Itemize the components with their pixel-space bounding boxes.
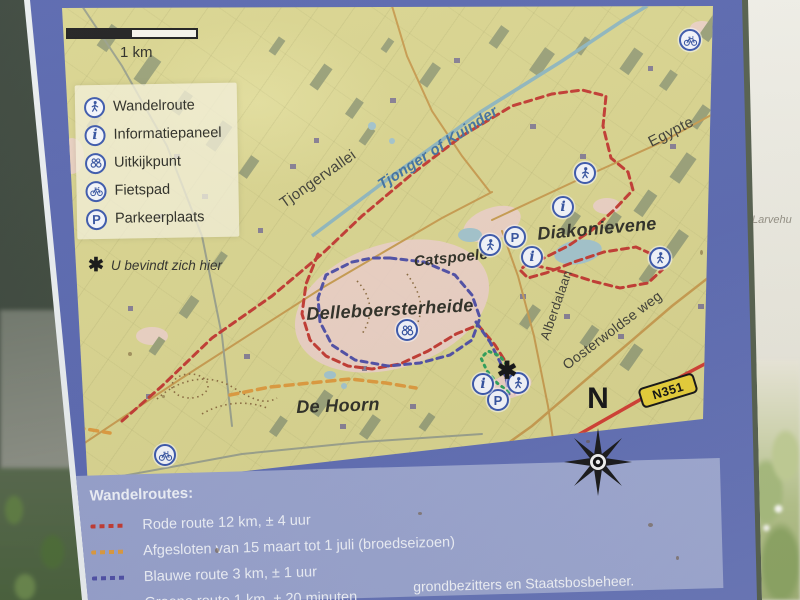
dirt-speck <box>215 548 219 553</box>
compass-star <box>560 414 636 510</box>
photo-of-information-sign: TjongervalleiTjonger of KuinderEgypteDia… <box>0 0 800 600</box>
legend-row-parkeerplaats: P Parkeerplaats <box>86 203 233 234</box>
marker-informatiepaneel: i <box>521 246 543 268</box>
legend-row-fietspad: Fietspad <box>85 175 232 206</box>
legend-label: Parkeerplaats <box>115 209 205 227</box>
marker-wandelroute <box>574 162 596 184</box>
dirt-speck <box>586 440 590 443</box>
route-label: Rode route 12 km, ± 4 uur <box>142 512 311 533</box>
legend-label: Fietspad <box>114 182 170 199</box>
dirt-speck <box>418 512 422 515</box>
route-label: Blauwe route 3 km, ± 1 uur <box>144 564 318 585</box>
route-label: Afgesloten van 15 maart tot 1 juli (broe… <box>143 534 455 559</box>
uitkijkpunt-icon <box>85 152 106 173</box>
legend-row-uitkijkpunt: Uitkijkpunt <box>85 147 232 178</box>
marker-fietspad <box>679 29 701 51</box>
marker-fietspad <box>154 444 176 466</box>
dirt-speck <box>128 352 132 356</box>
scale-bar-white <box>132 30 196 37</box>
legend-label: Uitkijkpunt <box>114 154 181 171</box>
marker-wandelroute <box>479 234 501 256</box>
compass-north-label: N <box>560 384 636 414</box>
dirt-speck <box>676 556 679 560</box>
you-are-here-text: U bevindt zich hier <box>111 258 222 273</box>
adjacent-panel-text: Larvehu <box>752 214 792 226</box>
informatiepaneel-icon: i <box>84 124 105 145</box>
blue-route-swatch <box>92 576 128 581</box>
legend-label: Informatiepaneel <box>113 125 221 143</box>
route-label: Groene route 1 km, ± 20 minuten <box>144 589 357 600</box>
scale-bar-black <box>68 30 132 37</box>
scale-bar <box>66 28 198 39</box>
wandelroute-icon <box>84 96 105 117</box>
marker-informatiepaneel: i <box>552 196 574 218</box>
fietspad-icon <box>85 180 106 201</box>
marker-informatiepaneel: i <box>472 373 494 395</box>
parkeerplaats-icon: P <box>86 208 107 229</box>
map-legend-box: Wandelroute i Informatiepaneel Uitkijkpu… <box>75 83 240 240</box>
red-route-swatch <box>90 524 126 529</box>
scale-label: 1 km <box>120 44 153 61</box>
dirt-speck <box>648 523 653 527</box>
legend-label: Wandelroute <box>113 97 195 114</box>
orange-route-swatch <box>91 550 127 555</box>
marker-you-are-here: ✱ <box>497 357 517 386</box>
dirt-speck <box>162 395 165 398</box>
marker-uitkijkpunt <box>396 319 418 341</box>
legend-row-wandelroute: Wandelroute <box>84 91 231 122</box>
you-are-here-icon: ✱ <box>88 254 104 277</box>
info-sign-panel: TjongervalleiTjonger of KuinderEgypteDia… <box>0 0 800 600</box>
marker-wandelroute <box>649 247 671 269</box>
you-are-here-note: ✱ U bevindt zich hier <box>88 254 222 277</box>
dirt-speck <box>700 250 703 255</box>
marker-parkeerplaats: P <box>487 389 509 411</box>
marker-parkeerplaats: P <box>504 226 526 248</box>
compass-rose: N <box>560 384 636 514</box>
legend-row-informatiepaneel: i Informatiepaneel <box>84 119 231 150</box>
